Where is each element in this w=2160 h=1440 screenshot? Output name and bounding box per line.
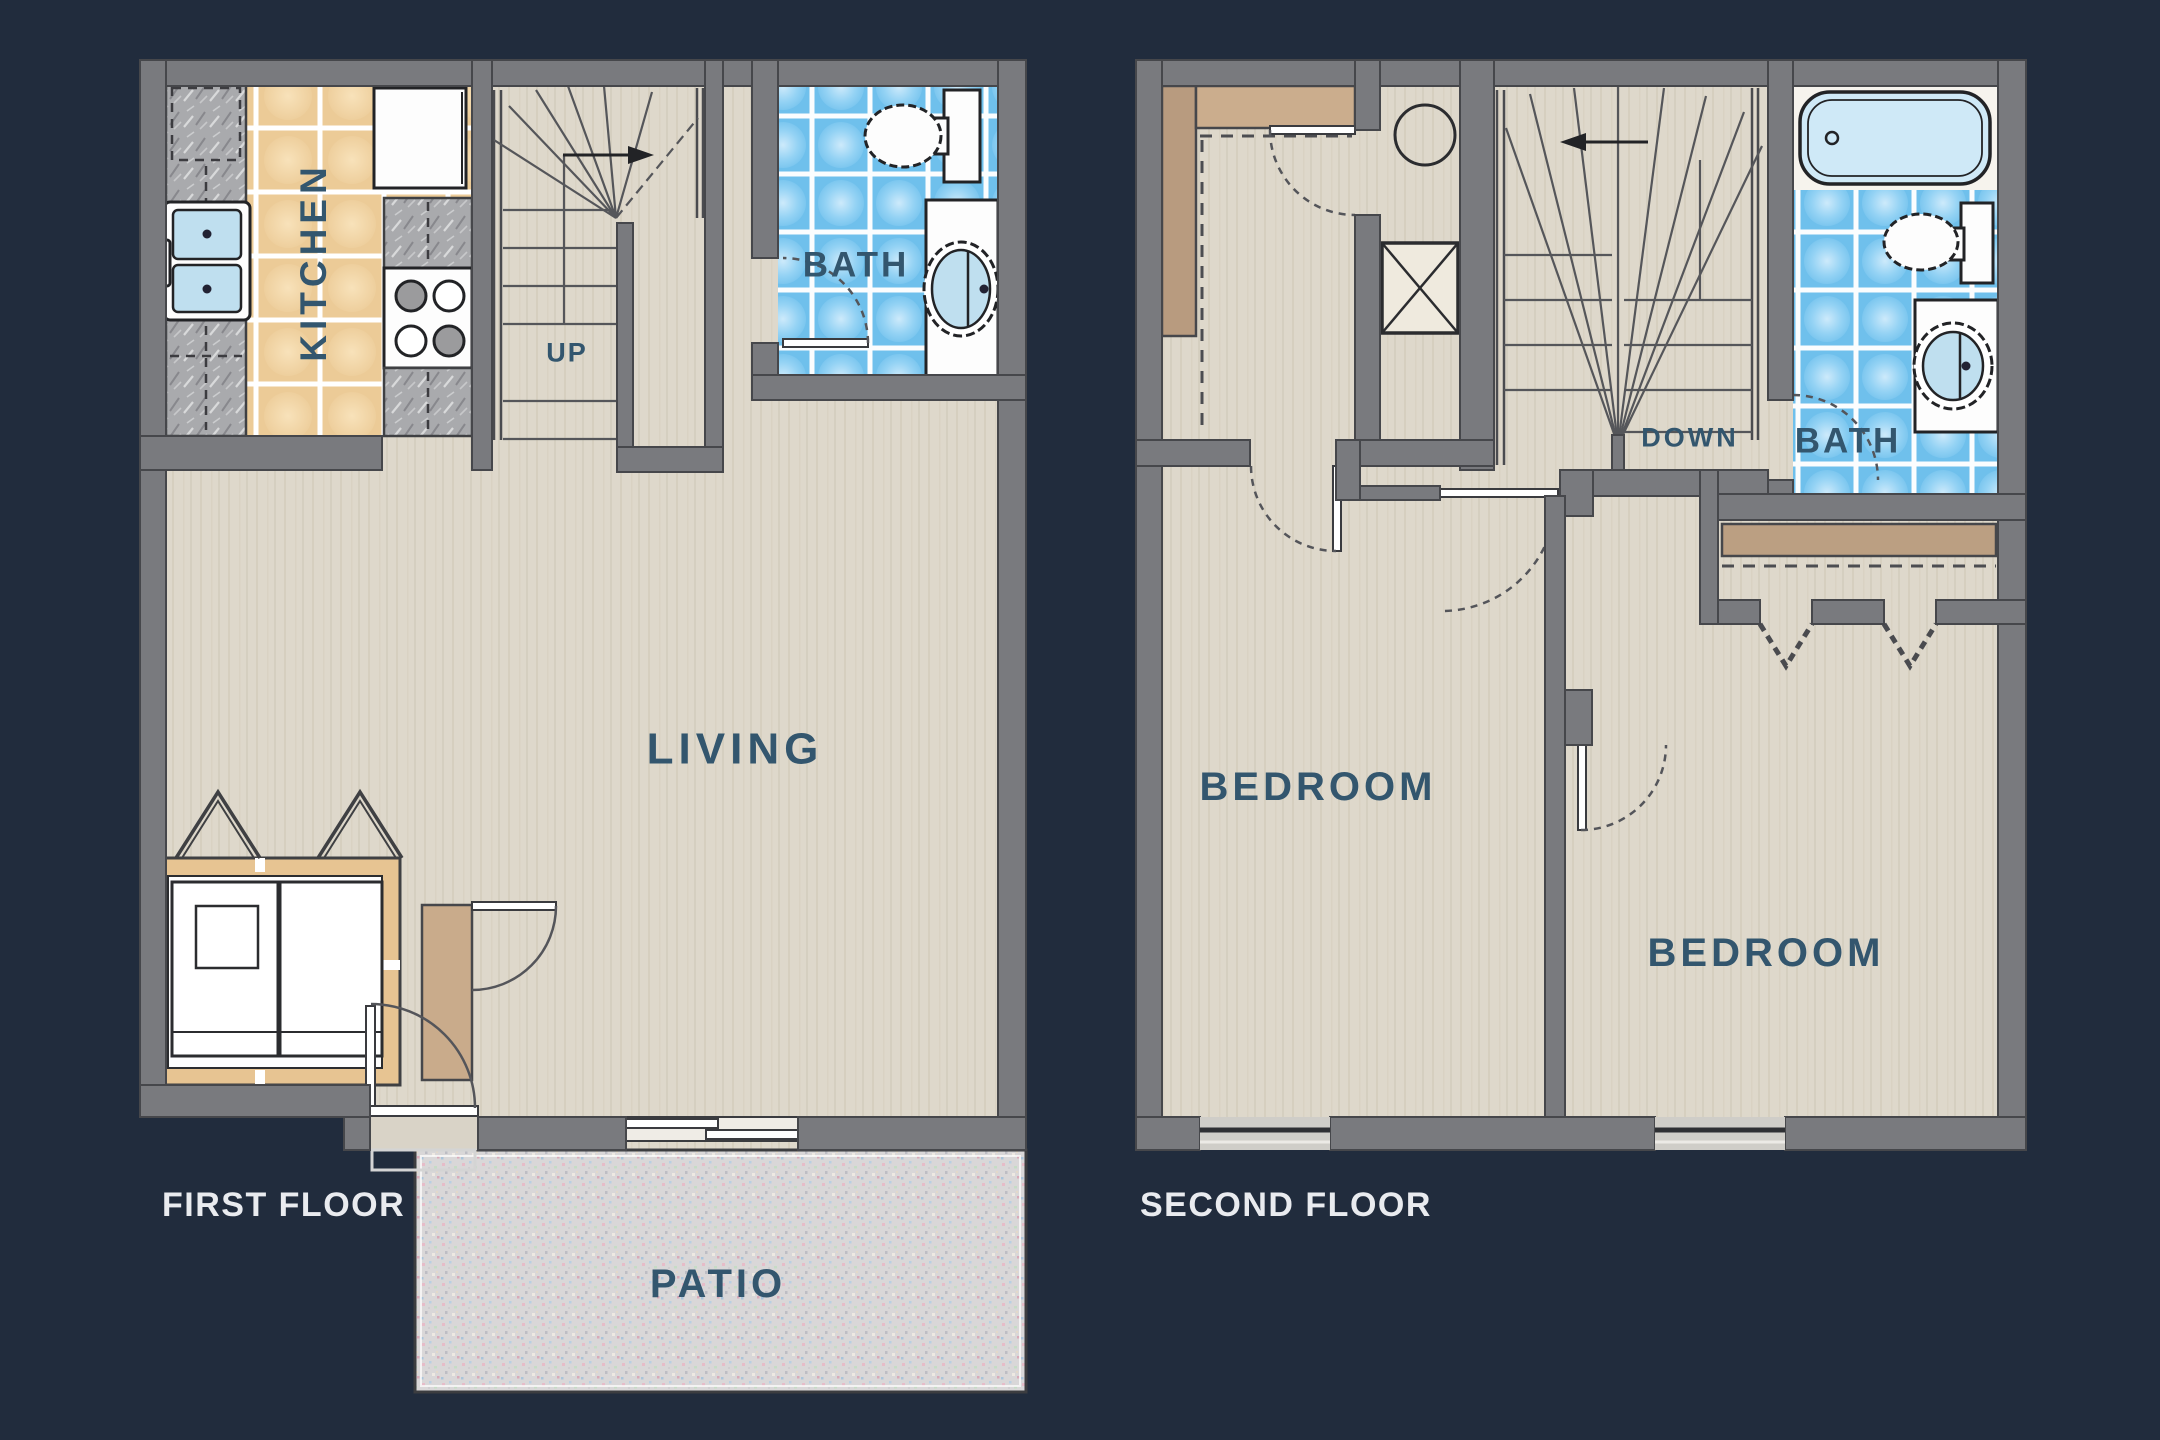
second-bath-label: BATH	[1795, 421, 1902, 460]
floor-plan-page: UP	[0, 0, 2160, 1440]
kitchen-sink-icon	[156, 202, 250, 320]
entry-cabinet	[422, 905, 472, 1080]
bedroom2-window	[1655, 1117, 1785, 1150]
bathtub-icon	[1800, 92, 1990, 184]
closet-shelf-left	[1162, 86, 1196, 336]
bathroom-sink-icon	[924, 200, 998, 378]
bedroom2-label: BEDROOM	[1648, 931, 1885, 975]
closet-shelf	[1722, 524, 1996, 556]
sliding-door	[626, 1117, 798, 1141]
first-floor-plan: UP	[140, 60, 1026, 1392]
hvac-unit-icon	[1382, 243, 1458, 333]
washer-icon	[172, 882, 278, 1056]
stove-icon	[384, 268, 472, 368]
stair-center-wall	[1612, 435, 1624, 473]
bedroom1-window	[1200, 1117, 1330, 1150]
bedroom1-label: BEDROOM	[1200, 765, 1437, 809]
patio-label: PATIO	[650, 1262, 786, 1306]
kitchen-label: KITCHEN	[293, 162, 334, 361]
second-floor-plan: DOWN	[1136, 60, 2026, 1224]
first-bath-label: BATH	[803, 245, 910, 284]
closet-door	[1270, 126, 1355, 134]
living-label: LIVING	[647, 724, 824, 773]
coat-closet-door	[472, 902, 556, 910]
floor-plan-diagram: UP	[0, 0, 2160, 1440]
stair-down-label: DOWN	[1641, 422, 1738, 452]
second-floor-title: SECOND FLOOR	[1140, 1186, 1432, 1224]
first-bath-door	[783, 339, 868, 347]
refrigerator-icon	[374, 88, 466, 188]
closet-shelf-top	[1196, 86, 1355, 128]
bathroom-sink-icon	[1914, 300, 1998, 432]
first-floor-title: FIRST FLOOR	[162, 1186, 405, 1224]
stair-up-label: UP	[546, 337, 588, 367]
